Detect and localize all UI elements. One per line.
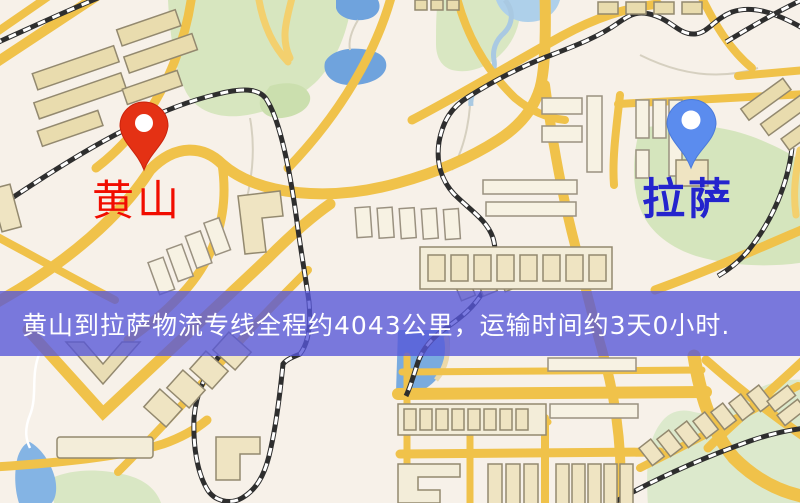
logistics-map-image: 黄山 拉萨 黄山到拉萨物流专线全程约4043公里，运输时间约3天0小时. xyxy=(0,0,800,503)
route-info-text: 黄山到拉萨物流专线全程约4043公里，运输时间约3天0小时. xyxy=(22,306,730,342)
route-info-banner: 黄山到拉萨物流专线全程约4043公里，运输时间约3天0小时. xyxy=(0,291,800,356)
destination-city-label: 拉萨 xyxy=(642,179,734,222)
map-canvas[interactable] xyxy=(0,0,800,503)
origin-city-label: 黄山 xyxy=(92,180,182,222)
